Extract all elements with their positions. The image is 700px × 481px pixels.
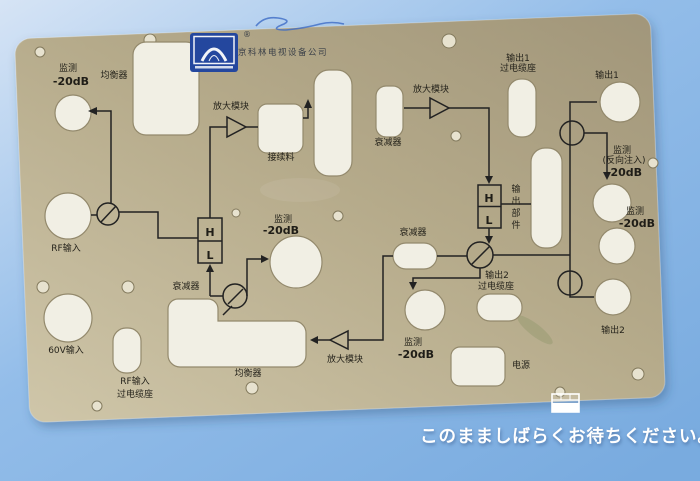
table-grid-icon — [552, 394, 579, 412]
cutout-slot-a — [314, 70, 352, 176]
cutout-60v-input — [44, 294, 92, 342]
label-power: 电源 — [512, 359, 530, 371]
cutout-rf-socket — [113, 328, 141, 373]
cutout-rf-input — [45, 193, 91, 239]
label-amplifier-right: 放大模块 — [413, 83, 449, 95]
cutout-monitor-bottom — [405, 290, 445, 330]
cutout-output1 — [600, 82, 640, 122]
panel-photo: 监测 -20dB 均衡器 北京科林电视设备公司 ® 放大模块 接续料 衰减器 放… — [0, 0, 700, 481]
label-output1-socket: 输出1 — [506, 52, 530, 64]
label-output-part-4: 件 — [511, 219, 520, 231]
label-monitor-reverse2: (反向注入) — [602, 154, 645, 166]
label-monitor-reverse: 监测 — [613, 144, 631, 156]
registered-mark: ® — [243, 30, 251, 39]
cutout-monitor-top-left — [55, 95, 91, 131]
label-rf-socket: RF输入 — [120, 375, 149, 387]
label-amplifier-top: 放大模块 — [213, 100, 249, 112]
cutout-attenuator-mid — [393, 243, 437, 269]
label-attenuator-mid: 衰减器 — [399, 226, 426, 238]
cutout-power — [451, 347, 505, 386]
cutout-plugin-slot — [258, 104, 303, 153]
cutout-monitor-mid — [270, 236, 322, 288]
cutout-equalizer-top — [133, 42, 199, 135]
label-monitor-top-left-db: -20dB — [53, 75, 89, 88]
cutout-output1-socket — [508, 79, 536, 137]
cutout-output-part — [531, 148, 562, 248]
label-output1: 输出1 — [595, 69, 619, 81]
cutout-output2-socket — [477, 294, 522, 321]
label-monitor-mid-db: -20dB — [263, 224, 299, 237]
label-monitor-reverse-db: -20dB — [606, 166, 642, 179]
label-60v-input: 60V输入 — [48, 344, 84, 356]
cutout-attenuator-top — [376, 86, 403, 137]
label-monitor-right-db: -20dB — [619, 217, 655, 230]
label-hl-right-l: L — [485, 214, 492, 227]
company-name: 北京科林电视设备公司 — [228, 47, 328, 58]
kelin-logo — [190, 33, 238, 72]
photo-stage: 监测 -20dB 均衡器 北京科林电视设备公司 ® 放大模块 接续料 衰减器 放… — [0, 0, 700, 481]
cutout-monitor-right — [599, 228, 635, 264]
label-amplifier-bottom: 放大模块 — [327, 353, 363, 365]
label-monitor-top-left: 监测 — [59, 62, 77, 74]
label-output-part-1: 输 — [511, 183, 520, 195]
cutout-output2 — [595, 279, 631, 315]
label-monitor-right: 监测 — [626, 205, 644, 217]
label-hl-left-l: L — [206, 249, 213, 262]
label-output1-socket2: 过电缆座 — [500, 62, 536, 74]
label-output2-socket2: 过电缆座 — [478, 280, 514, 292]
label-hl-left-h: H — [205, 226, 214, 239]
label-plugin-slot: 接续料 — [267, 151, 294, 163]
label-monitor-bottom-db: -20dB — [398, 348, 434, 361]
label-attenuator-left: 衰减器 — [172, 280, 199, 292]
label-equalizer-bottom: 均衡器 — [234, 367, 261, 379]
label-output2: 输出2 — [601, 324, 625, 336]
label-output-part-2: 出 — [511, 195, 520, 207]
wait-message: このまましばらくお待ちください。 — [420, 426, 700, 447]
label-output2-socket: 输出2 — [485, 269, 509, 281]
label-output-part-3: 部 — [511, 207, 520, 219]
label-hl-right-h: H — [484, 192, 493, 205]
label-equalizer-top: 均衡器 — [100, 69, 127, 81]
label-rf-input: RF输入 — [51, 242, 80, 254]
label-rf-socket2: 过电缆座 — [117, 388, 153, 400]
label-monitor-bottom: 监测 — [404, 336, 422, 348]
label-attenuator-top: 衰减器 — [374, 136, 401, 148]
